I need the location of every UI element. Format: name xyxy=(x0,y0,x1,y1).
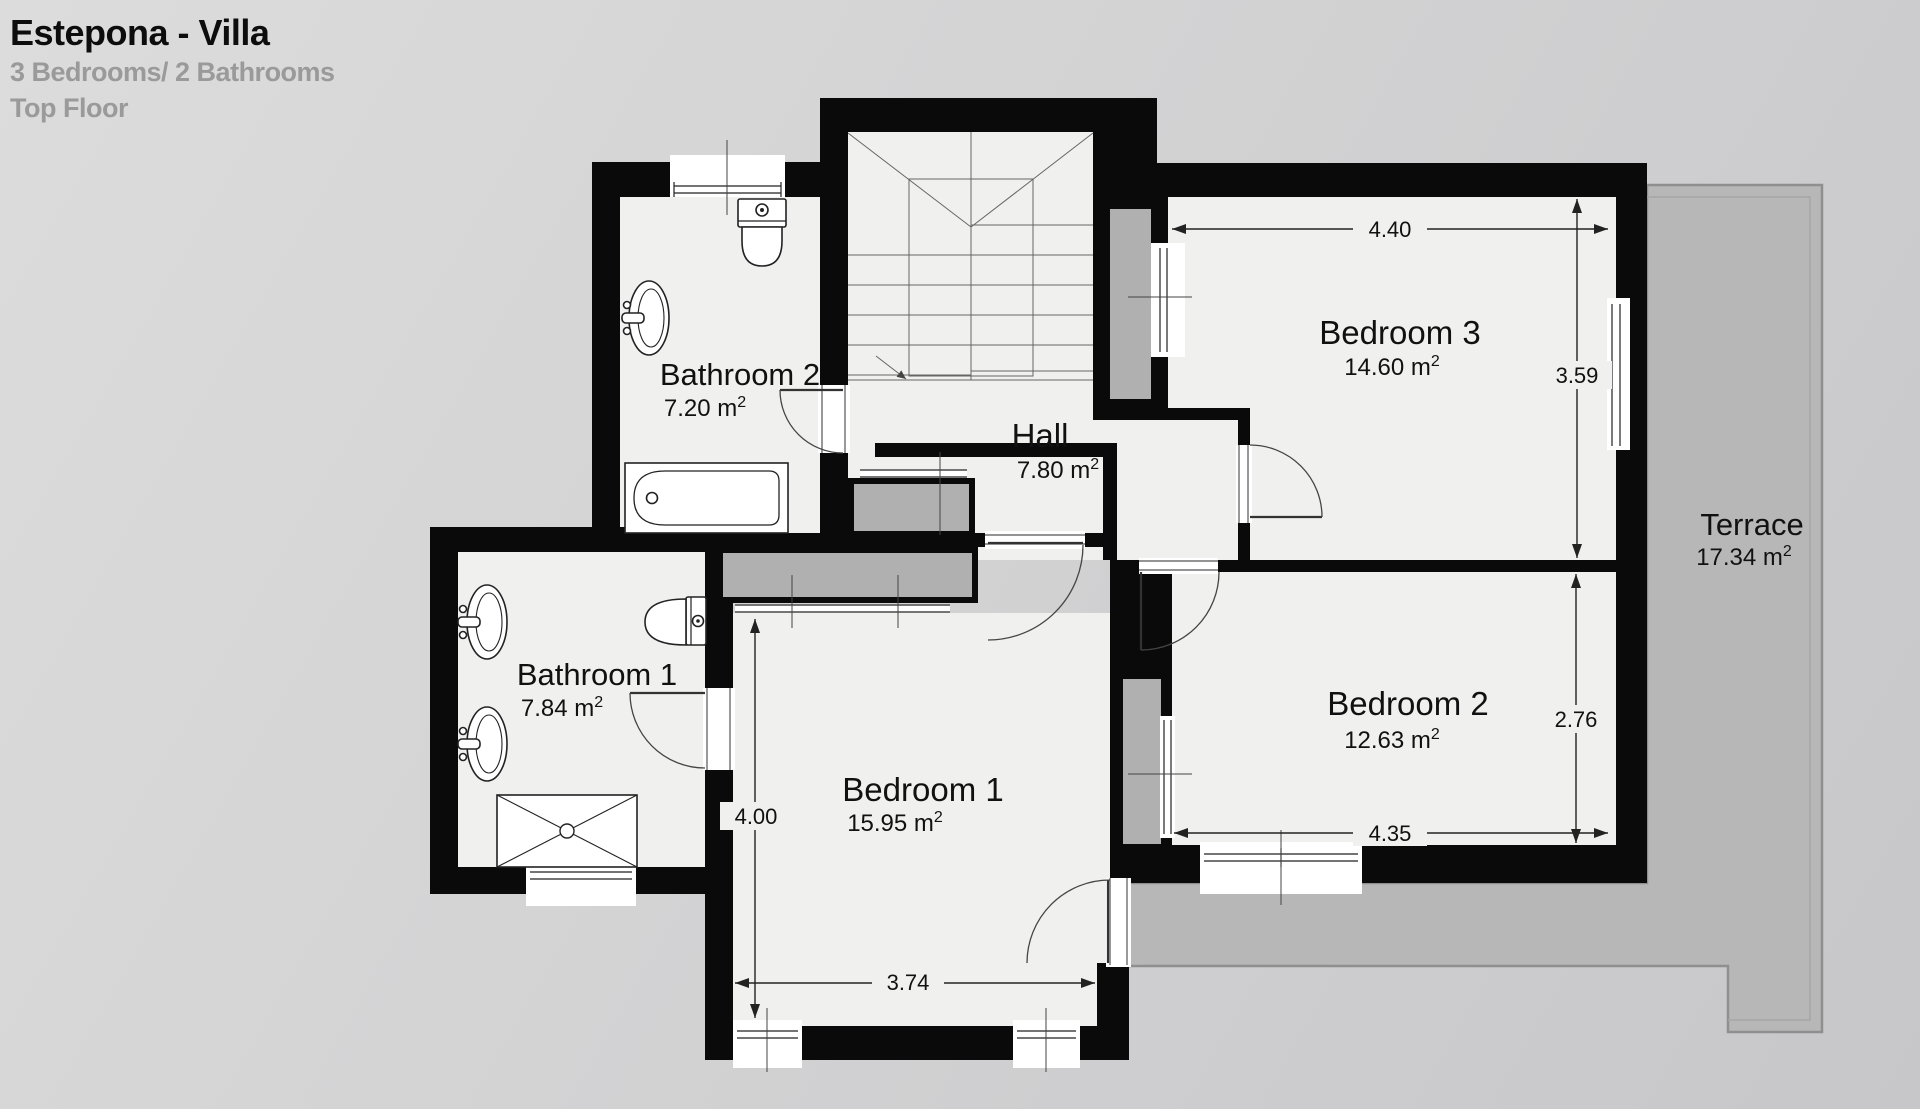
svg-text:3.59: 3.59 xyxy=(1556,363,1599,388)
closet-bedroom1 xyxy=(720,550,975,600)
shaft-hall xyxy=(1107,206,1154,402)
shaft-bedroom2 xyxy=(1123,679,1161,844)
svg-text:Terrace: Terrace xyxy=(1700,507,1803,542)
svg-text:17.34 m2: 17.34 m2 xyxy=(1696,543,1792,571)
toilet-icon-bathroom2 xyxy=(738,199,786,266)
svg-text:3.74: 3.74 xyxy=(887,970,930,995)
svg-text:4.00: 4.00 xyxy=(735,804,778,829)
svg-text:Bedroom 3: Bedroom 3 xyxy=(1319,314,1480,351)
svg-text:7.20 m2: 7.20 m2 xyxy=(664,394,746,422)
svg-text:Bathroom 2: Bathroom 2 xyxy=(660,357,820,392)
svg-text:15.95 m2: 15.95 m2 xyxy=(847,809,943,837)
page-title: Estepona - Villa xyxy=(10,10,335,55)
svg-text:Bedroom 2: Bedroom 2 xyxy=(1327,685,1488,722)
svg-text:4.40: 4.40 xyxy=(1369,217,1412,242)
subtitle-floor: Top Floor xyxy=(10,91,335,127)
svg-text:12.63 m2: 12.63 m2 xyxy=(1344,726,1440,754)
svg-text:Bedroom 1: Bedroom 1 xyxy=(842,771,1003,808)
window-bathroom1-bottom xyxy=(526,862,636,906)
svg-text:4.35: 4.35 xyxy=(1369,821,1412,846)
bathtub-icon xyxy=(625,463,788,533)
svg-text:2.76: 2.76 xyxy=(1555,707,1598,732)
svg-text:7.84 m2: 7.84 m2 xyxy=(521,694,603,722)
floorplan-canvas: 4.40 3.59 2.76 4.35 4.00 xyxy=(0,0,1920,1109)
svg-text:7.80 m2: 7.80 m2 xyxy=(1017,456,1099,484)
floorplan-page: Estepona - Villa 3 Bedrooms/ 2 Bathrooms… xyxy=(0,0,1920,1109)
svg-text:Bathroom 1: Bathroom 1 xyxy=(517,657,677,692)
subtitle-rooms-count: 3 Bedrooms/ 2 Bathrooms xyxy=(10,55,335,91)
svg-text:Hall: Hall xyxy=(1012,417,1069,454)
title-block: Estepona - Villa 3 Bedrooms/ 2 Bathrooms… xyxy=(10,10,335,126)
svg-text:14.60 m2: 14.60 m2 xyxy=(1344,353,1440,381)
closet-hall xyxy=(851,481,972,534)
shower-icon xyxy=(497,795,637,867)
